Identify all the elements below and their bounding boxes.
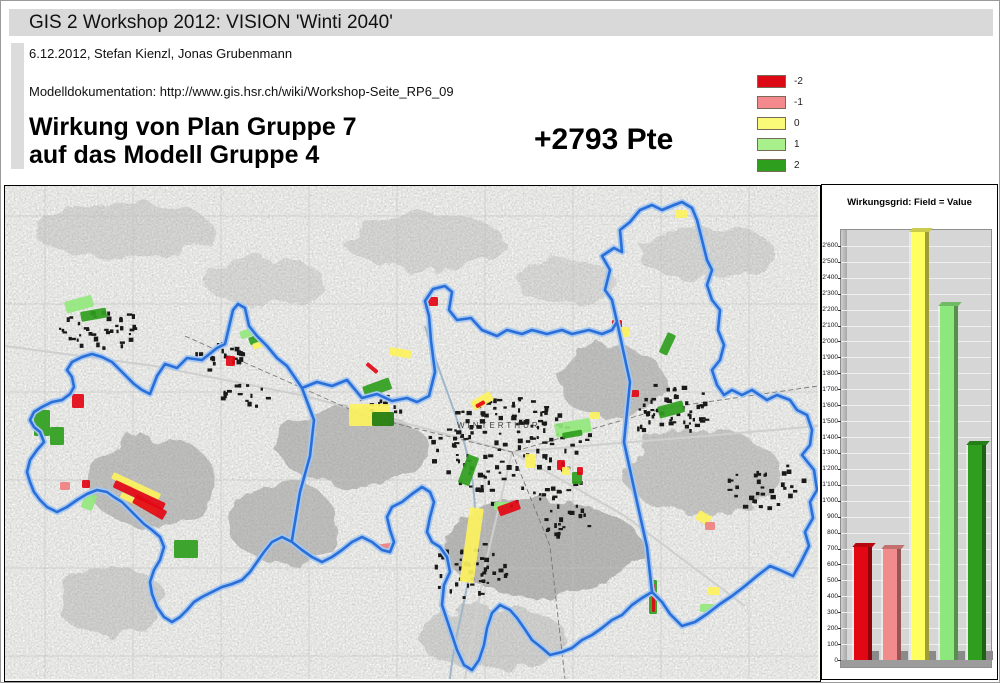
y-tick-label: 900 — [821, 513, 838, 520]
chart-bar-1 — [938, 306, 958, 660]
y-tick-mark — [838, 294, 841, 295]
building — [673, 389, 677, 392]
building — [481, 573, 484, 577]
building — [558, 413, 563, 418]
building — [518, 439, 523, 444]
building — [554, 532, 558, 536]
y-tick-mark — [838, 644, 841, 645]
building — [539, 493, 541, 496]
building — [545, 488, 550, 491]
bar-cap-3d — [938, 302, 961, 306]
chart-bar-0 — [909, 232, 929, 660]
building — [261, 388, 263, 391]
building — [545, 408, 549, 412]
y-tick-mark — [838, 612, 841, 613]
score-value: +2793 Pte — [534, 123, 673, 157]
y-tick-label: 1'500 — [821, 418, 838, 425]
building — [480, 490, 482, 493]
bar-side-3d — [954, 306, 958, 660]
building — [246, 384, 249, 387]
building — [230, 348, 234, 351]
y-tick-mark — [838, 341, 841, 342]
building — [394, 405, 396, 409]
main-title: Wirkung von Plan Gruppe 7 auf das Modell… — [29, 113, 357, 169]
impact-patch-y — [562, 467, 570, 475]
building — [493, 407, 496, 410]
building — [456, 454, 459, 456]
building — [456, 459, 459, 462]
building — [483, 543, 488, 546]
building — [515, 466, 518, 471]
building — [512, 474, 516, 477]
building — [132, 314, 135, 319]
building — [499, 472, 502, 474]
impact-patch-g — [50, 427, 64, 445]
building — [455, 582, 458, 586]
chart-floor — [841, 660, 991, 667]
bar-cap-3d — [966, 441, 989, 445]
building — [787, 470, 792, 475]
legend-swatch — [757, 159, 786, 172]
y-tick-mark — [838, 660, 841, 661]
y-tick-label: 400 — [821, 593, 838, 600]
impact-patch-r — [72, 394, 84, 408]
building — [495, 413, 497, 415]
legend-swatch — [757, 96, 786, 109]
y-tick-label: 200 — [821, 625, 838, 632]
bar-cap-3d — [852, 543, 875, 547]
y-tick-label: 800 — [821, 529, 838, 536]
building — [576, 505, 578, 508]
building — [558, 523, 561, 525]
building — [483, 455, 487, 459]
left-accent-strip — [11, 43, 24, 169]
building — [533, 492, 536, 495]
building — [129, 333, 131, 335]
building — [456, 430, 461, 434]
building — [583, 513, 586, 517]
impact-patch-y — [675, 210, 687, 218]
y-tick-mark — [838, 373, 841, 374]
building — [92, 333, 97, 336]
building — [588, 433, 592, 437]
building — [550, 443, 554, 445]
y-tick-mark — [838, 437, 841, 438]
building — [106, 331, 110, 334]
building — [644, 398, 648, 402]
building — [470, 431, 473, 434]
building — [120, 341, 125, 344]
building — [786, 465, 789, 468]
building — [80, 344, 84, 348]
y-tick-label: 1'900 — [821, 354, 838, 361]
building — [239, 351, 243, 356]
building — [754, 499, 757, 503]
building — [461, 411, 464, 413]
building — [685, 401, 688, 405]
building — [199, 352, 203, 356]
building — [482, 475, 485, 477]
building — [440, 574, 443, 578]
legend-item--1: -1 — [757, 96, 803, 109]
building — [59, 328, 61, 330]
legend-label: 1 — [794, 139, 800, 150]
building — [121, 344, 124, 348]
building — [450, 589, 452, 593]
chart-left-wall — [841, 230, 847, 667]
y-tick-label: 0 — [821, 657, 838, 664]
building — [790, 485, 793, 488]
y-tick-label: 600 — [821, 561, 838, 568]
building — [488, 454, 493, 457]
building — [530, 436, 534, 440]
building — [549, 457, 552, 462]
map: WINTERTHUR — [4, 185, 821, 682]
map-canvas: WINTERTHUR — [5, 186, 818, 679]
building — [239, 357, 243, 362]
y-tick-label: 1'300 — [821, 449, 838, 456]
impact-patch-g — [174, 540, 198, 558]
building — [432, 459, 437, 463]
y-tick-mark — [838, 262, 841, 263]
building — [575, 451, 579, 455]
building — [783, 487, 786, 490]
building — [755, 475, 758, 478]
y-tick-label: 1'800 — [821, 370, 838, 377]
legend-label: -2 — [794, 76, 803, 87]
y-tick-label: 500 — [821, 577, 838, 584]
chart-bar-2 — [966, 445, 986, 660]
building — [693, 418, 695, 422]
building — [455, 411, 460, 415]
building — [208, 368, 213, 371]
building — [569, 511, 574, 515]
building — [498, 448, 502, 451]
building — [494, 440, 498, 445]
building — [502, 478, 507, 481]
building — [637, 427, 640, 432]
building — [756, 492, 760, 495]
building — [86, 328, 89, 331]
building — [546, 529, 549, 532]
building — [468, 435, 471, 439]
building — [542, 422, 547, 426]
building — [195, 352, 198, 357]
building — [771, 495, 776, 499]
y-tick-mark — [838, 533, 841, 534]
chart-panel: Wirkungsgrid: Field = Value 010020030040… — [821, 184, 998, 680]
building — [769, 489, 774, 493]
y-tick-label: 2'600 — [821, 242, 838, 249]
building — [110, 329, 113, 333]
building — [548, 466, 552, 470]
main-title-line2: auf das Modell Gruppe 4 — [29, 141, 357, 169]
building — [672, 421, 676, 423]
authors-date: 6.12.2012, Stefan Kienzl, Jonas Grubenma… — [29, 46, 292, 61]
building — [486, 566, 489, 570]
building — [129, 338, 134, 342]
chart-title: Wirkungsgrid: Field = Value — [822, 197, 997, 208]
building — [470, 584, 474, 586]
building — [562, 526, 565, 528]
building — [585, 439, 589, 441]
building — [132, 325, 136, 330]
building — [394, 410, 397, 413]
building — [689, 414, 692, 419]
building — [700, 404, 705, 407]
y-tick-mark — [838, 628, 841, 629]
building — [431, 440, 436, 445]
building — [493, 398, 497, 403]
y-tick-mark — [838, 326, 841, 327]
building — [455, 563, 459, 565]
documentation-link-text: Modelldokumentation: http://www.gis.hsr.… — [29, 84, 454, 99]
building — [702, 392, 705, 395]
y-tick-mark — [838, 580, 841, 581]
impact-patch-dg — [372, 412, 394, 426]
building — [255, 405, 258, 408]
building — [667, 388, 671, 392]
building — [543, 428, 545, 433]
building — [503, 564, 507, 568]
building — [761, 486, 765, 488]
impact-patch-r — [82, 480, 90, 488]
building — [77, 339, 79, 342]
building — [689, 410, 692, 413]
legend-label: -1 — [794, 97, 803, 108]
impact-patch-sa — [60, 482, 70, 490]
building — [699, 417, 703, 421]
building — [643, 404, 646, 408]
building — [499, 416, 503, 420]
building — [518, 399, 521, 402]
bar-side-3d — [868, 547, 872, 660]
building — [802, 479, 807, 484]
building — [499, 433, 502, 435]
building — [115, 325, 118, 327]
building — [705, 419, 710, 421]
building — [761, 493, 766, 496]
building — [62, 329, 65, 332]
building — [482, 579, 486, 583]
building — [497, 578, 500, 581]
building — [667, 399, 672, 403]
y-tick-mark — [838, 246, 841, 247]
y-tick-label: 2'000 — [821, 338, 838, 345]
building — [518, 445, 521, 450]
building — [488, 481, 490, 485]
building — [549, 438, 553, 442]
building — [648, 420, 650, 424]
y-tick-label: 100 — [821, 641, 838, 648]
y-tick-label: 2'400 — [821, 274, 838, 281]
building — [463, 438, 468, 440]
building — [435, 565, 438, 570]
building — [500, 461, 505, 463]
building — [490, 489, 495, 492]
bar-cap-3d — [881, 545, 904, 549]
y-tick-mark — [838, 517, 841, 518]
building — [460, 435, 464, 438]
impact-patch-y — [590, 412, 600, 419]
building — [235, 385, 239, 388]
y-tick-mark — [838, 564, 841, 565]
page-title: GIS 2 Workshop 2012: VISION 'Winti 2040' — [29, 12, 393, 34]
building — [517, 431, 521, 434]
building — [512, 402, 515, 407]
legend-item-0: 0 — [757, 117, 803, 130]
y-tick-mark — [838, 278, 841, 279]
building — [469, 486, 473, 488]
building — [247, 402, 251, 407]
building — [640, 425, 643, 429]
building — [480, 557, 484, 560]
y-tick-mark — [838, 501, 841, 502]
building — [552, 496, 557, 499]
bar-side-3d — [897, 549, 901, 660]
building — [79, 334, 81, 336]
building — [503, 406, 506, 408]
building — [570, 444, 575, 447]
building — [539, 498, 541, 501]
impact-patch-y — [525, 454, 535, 468]
y-tick-mark — [838, 405, 841, 406]
building — [685, 425, 689, 429]
building — [499, 569, 504, 573]
building — [757, 480, 761, 485]
building — [642, 428, 646, 432]
impact-patch-sa — [705, 522, 715, 530]
bar-side-3d — [925, 232, 929, 660]
building — [495, 465, 499, 469]
building — [554, 523, 557, 528]
building — [777, 503, 781, 506]
building — [120, 317, 123, 321]
building — [484, 558, 489, 562]
building — [542, 441, 547, 443]
legend-swatch — [757, 75, 786, 88]
y-tick-label: 1'200 — [821, 465, 838, 472]
building — [734, 495, 738, 498]
poster-page: GIS 2 Workshop 2012: VISION 'Winti 2040'… — [0, 0, 1000, 683]
building — [481, 485, 484, 490]
building — [579, 514, 583, 518]
y-tick-label: 1'100 — [821, 481, 838, 488]
building — [652, 415, 655, 419]
bar-side-3d — [982, 445, 986, 660]
building — [781, 482, 785, 487]
y-tick-label: 300 — [821, 609, 838, 616]
building — [550, 510, 552, 513]
building — [505, 573, 508, 576]
building — [467, 584, 469, 588]
building — [759, 505, 763, 508]
building — [650, 400, 652, 404]
building — [460, 550, 463, 555]
building — [736, 474, 739, 476]
building — [479, 593, 484, 595]
building — [557, 504, 559, 509]
building — [446, 470, 451, 474]
y-tick-label: 2'500 — [821, 258, 838, 265]
chart-bar--2 — [852, 547, 872, 660]
building — [439, 437, 443, 440]
building — [551, 487, 556, 491]
building — [463, 596, 466, 599]
building — [669, 419, 672, 421]
y-tick-label: 700 — [821, 545, 838, 552]
legend-item-1: 1 — [757, 138, 803, 151]
building — [127, 313, 132, 315]
building — [69, 316, 73, 319]
building — [689, 429, 691, 433]
building — [557, 490, 561, 494]
building — [545, 455, 547, 460]
building — [566, 489, 571, 491]
building — [492, 571, 496, 575]
legend-label: 2 — [794, 160, 800, 171]
building — [544, 518, 548, 521]
legend-swatch — [757, 138, 786, 151]
building — [507, 465, 512, 470]
building — [429, 436, 433, 439]
building — [102, 346, 105, 350]
bar-cap-3d — [909, 228, 932, 232]
building — [497, 399, 502, 401]
chart-bar--1 — [881, 549, 901, 660]
building — [579, 440, 582, 443]
building — [447, 429, 452, 431]
building — [682, 386, 688, 390]
legend-item--2: -2 — [757, 75, 803, 88]
building — [481, 414, 484, 417]
building — [511, 416, 516, 421]
building — [224, 391, 226, 394]
building — [536, 449, 539, 454]
building — [107, 317, 112, 322]
building — [683, 420, 685, 424]
y-tick-label: 1'000 — [821, 497, 838, 504]
building — [756, 471, 759, 473]
building — [581, 509, 585, 514]
building — [674, 395, 679, 399]
building — [238, 393, 243, 395]
y-tick-mark — [838, 485, 841, 486]
building — [467, 411, 472, 415]
y-tick-mark — [838, 310, 841, 311]
legend-label: 0 — [794, 118, 800, 129]
building — [453, 437, 457, 441]
building — [235, 347, 240, 352]
y-tick-label: 2'200 — [821, 306, 838, 313]
building — [399, 410, 402, 414]
building — [689, 422, 691, 424]
building — [782, 471, 787, 476]
building — [555, 417, 558, 421]
building — [94, 337, 98, 342]
header-bar: GIS 2 Workshop 2012: VISION 'Winti 2040' — [9, 9, 993, 36]
building — [749, 496, 754, 501]
building — [654, 384, 658, 387]
building — [250, 394, 252, 398]
building — [564, 449, 566, 454]
building — [743, 505, 748, 509]
y-tick-label: 2'300 — [821, 290, 838, 297]
building — [78, 322, 80, 325]
building — [660, 423, 665, 427]
impact-patch-y — [708, 587, 720, 595]
legend: -2-1012 — [757, 75, 803, 180]
